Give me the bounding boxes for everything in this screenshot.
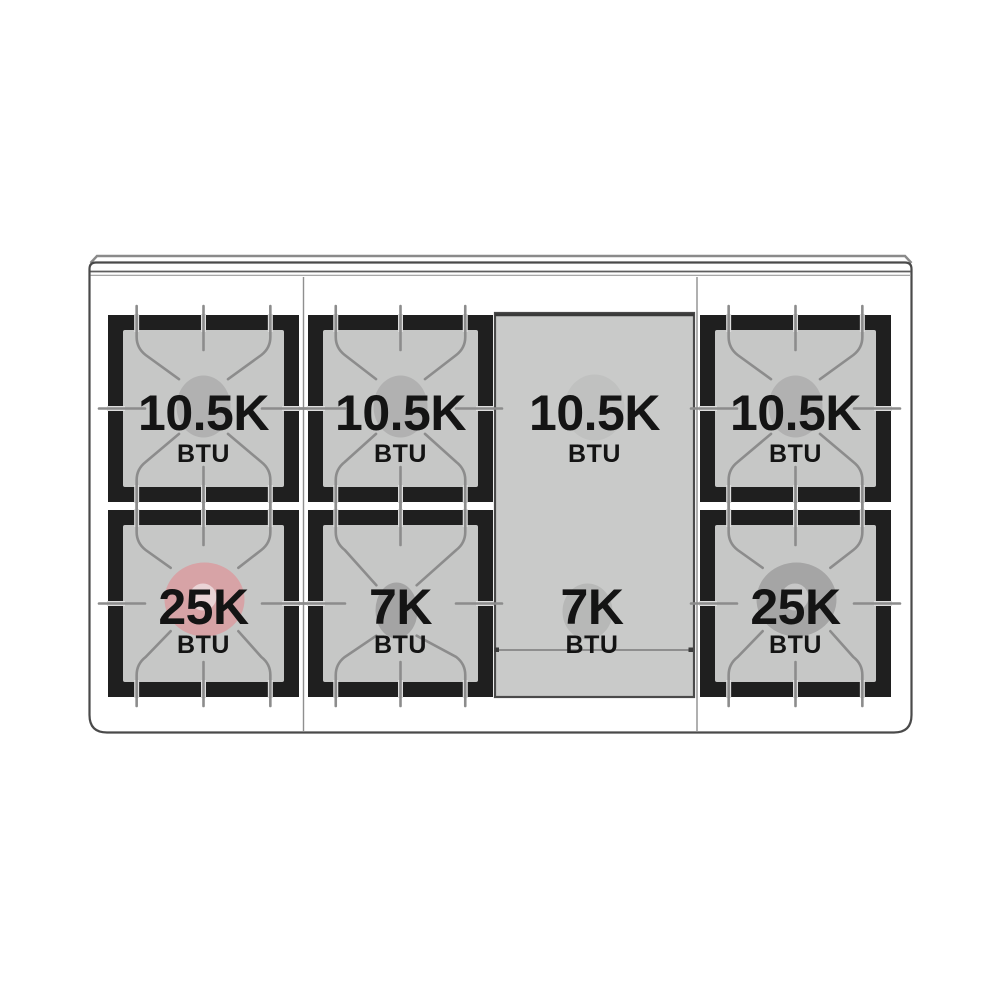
burner-label-right-rear: 10.5K: [730, 385, 861, 441]
burner-unit-left-front: BTU: [177, 631, 230, 659]
burner-unit-center-left-front: BTU: [374, 631, 427, 659]
burner-unit-griddle-front: BTU: [566, 631, 619, 659]
burner-unit-center-left-rear: BTU: [374, 440, 427, 468]
cooktop-diagram: 10.5KBTU10.5KBTU10.5KBTU10.5KBTU25KBTU7K…: [0, 0, 1000, 1000]
cooktop-diagram-stage: 10.5KBTU10.5KBTU10.5KBTU10.5KBTU25KBTU7K…: [0, 0, 1000, 1000]
burner-label-center-left-rear: 10.5K: [335, 385, 466, 441]
burner-unit-griddle-rear: BTU: [568, 440, 621, 468]
burner-label-griddle-front: 7K: [561, 579, 624, 635]
burner-label-griddle-rear: 10.5K: [529, 385, 660, 441]
burner-unit-right-front: BTU: [769, 631, 822, 659]
burner-unit-left-rear: BTU: [177, 440, 230, 468]
burner-label-center-left-front: 7K: [369, 579, 432, 635]
burner-label-right-front: 25K: [750, 579, 841, 635]
griddle-groove-tick-right: [689, 648, 694, 653]
griddle-groove-tick-left: [495, 648, 500, 653]
burner-unit-right-rear: BTU: [769, 440, 822, 468]
burner-label-left-front: 25K: [158, 579, 249, 635]
burner-label-left-rear: 10.5K: [138, 385, 269, 441]
